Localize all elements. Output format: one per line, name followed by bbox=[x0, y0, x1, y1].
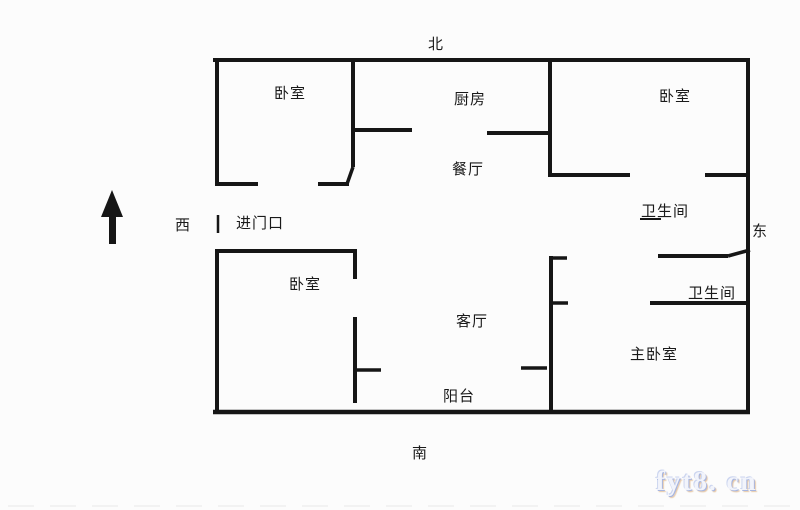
north-arrow-head bbox=[101, 190, 123, 217]
room-label-bedroom-sw: 卧室 bbox=[289, 277, 321, 292]
room-label-dining: 餐厅 bbox=[452, 162, 484, 177]
room-label-entrance: 进门口 bbox=[236, 216, 284, 231]
compass-south-label: 南 bbox=[412, 446, 428, 461]
watermark-text: fyt8. cn bbox=[656, 466, 757, 497]
compass-west-label: 西 bbox=[175, 218, 191, 233]
floorplan-canvas bbox=[0, 0, 800, 510]
north-arrow-icon bbox=[101, 190, 123, 244]
compass-east-label: 东 bbox=[752, 224, 768, 239]
north-arrow-shaft bbox=[109, 214, 116, 244]
room-label-bedroom-ne: 卧室 bbox=[659, 89, 691, 104]
room-label-balcony: 阳台 bbox=[443, 389, 475, 404]
room-label-kitchen: 厨房 bbox=[454, 92, 486, 107]
nw-bedroom-door-leaf bbox=[347, 167, 353, 184]
room-label-master-bedroom: 主卧室 bbox=[630, 347, 678, 362]
compass-north-label: 北 bbox=[428, 37, 444, 52]
room-label-bathroom-lower: 卫生间 bbox=[688, 286, 736, 301]
room-label-bedroom-nw: 卧室 bbox=[274, 86, 306, 101]
floorplan-page: 北 南 西 东 卧室 厨房 卧室 餐厅 进门口 卫生间 卫生间 卧室 客厅 主卧… bbox=[0, 0, 800, 510]
room-label-bathroom-upper: 卫生间 bbox=[641, 204, 689, 219]
room-label-living-room: 客厅 bbox=[456, 314, 488, 329]
